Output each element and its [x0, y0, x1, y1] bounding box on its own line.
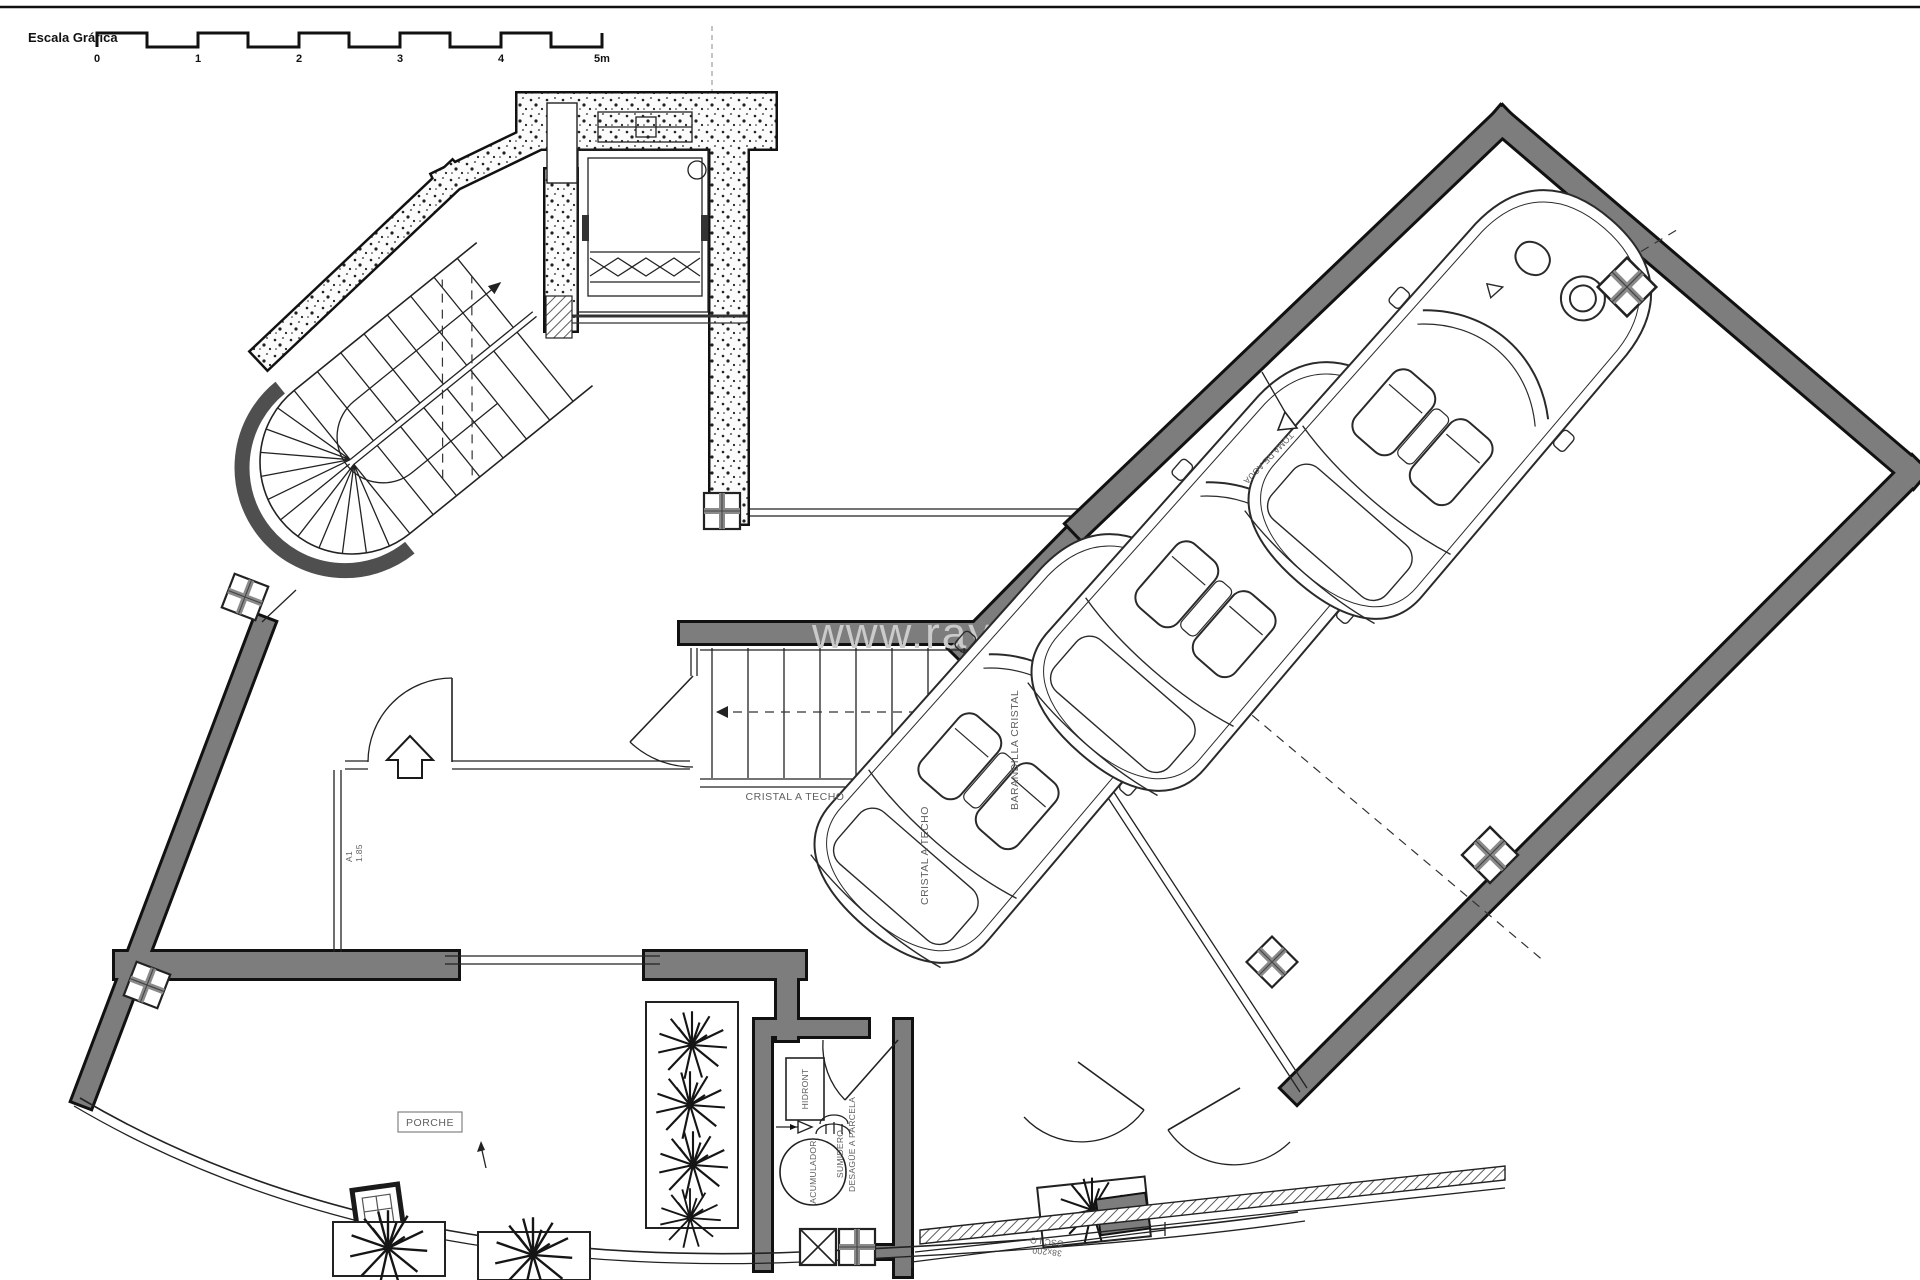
window-column	[704, 493, 740, 529]
drainage-channel: 38x200 OSCILO	[912, 1166, 1505, 1268]
scale-bar-rule	[97, 33, 602, 47]
structural-column	[800, 1229, 836, 1265]
entry-door-code: A1	[344, 851, 354, 862]
floor-plan-canvas: Escala Gráfica 0 1 2 3 4 5m	[0, 0, 1920, 1280]
utility-door	[823, 1040, 898, 1100]
scale-tick-3: 3	[397, 53, 403, 65]
elevator-door-jamb	[547, 103, 577, 183]
flow-arrow	[776, 1121, 812, 1133]
channel-label: 38x200 OSCILO	[1028, 1235, 1064, 1258]
porch-label-box: PORCHE	[398, 1112, 462, 1132]
scale-tick-0: 0	[94, 53, 100, 65]
glass-ceiling-vertical-label: CRISTAL A TECHO	[919, 806, 931, 905]
porch-label: PORCHE	[406, 1117, 454, 1129]
drain-to-plot-label: DESAGÜE A PARCELA	[847, 1097, 857, 1192]
accumulator-label: ACUMULADOR	[808, 1140, 818, 1203]
glass-ceiling-label: CRISTAL A TECHO	[746, 791, 845, 803]
drain-label: SUMIDERO	[835, 1130, 845, 1178]
hall-door	[630, 676, 693, 767]
sheet-border	[0, 7, 1920, 92]
entrance-arrow-icon	[387, 736, 433, 778]
planters	[333, 1002, 1151, 1280]
hydro-unit-label: HIDRONT	[800, 1069, 810, 1110]
scale-tick-1: 1	[195, 53, 201, 65]
structural-column	[546, 296, 572, 338]
glass-railing-label: BARANDILLA CRISTAL	[1009, 690, 1021, 810]
entry-door-width: 1.85	[354, 844, 364, 862]
entry-glazing-label: A1 1.85	[344, 844, 364, 862]
window-column	[839, 1229, 875, 1265]
floor-plan-sheet: Escala Gráfica 0 1 2 3 4 5m	[0, 0, 1920, 1280]
window-column	[222, 574, 269, 621]
elevator-scissor-gate	[590, 258, 700, 276]
garage-doors	[1024, 1062, 1290, 1165]
garage-column	[1247, 937, 1298, 988]
garage: TOMA DE AGUA	[776, 122, 1912, 1092]
scale-tick-2: 2	[296, 53, 302, 65]
scale-tick-5m: 5m	[594, 53, 610, 65]
oval-staircase	[200, 234, 599, 612]
entry-door	[368, 678, 452, 778]
scale-tick-4: 4	[498, 53, 505, 65]
scale-bar: Escala Gráfica 0 1 2 3 4 5m	[28, 30, 610, 65]
